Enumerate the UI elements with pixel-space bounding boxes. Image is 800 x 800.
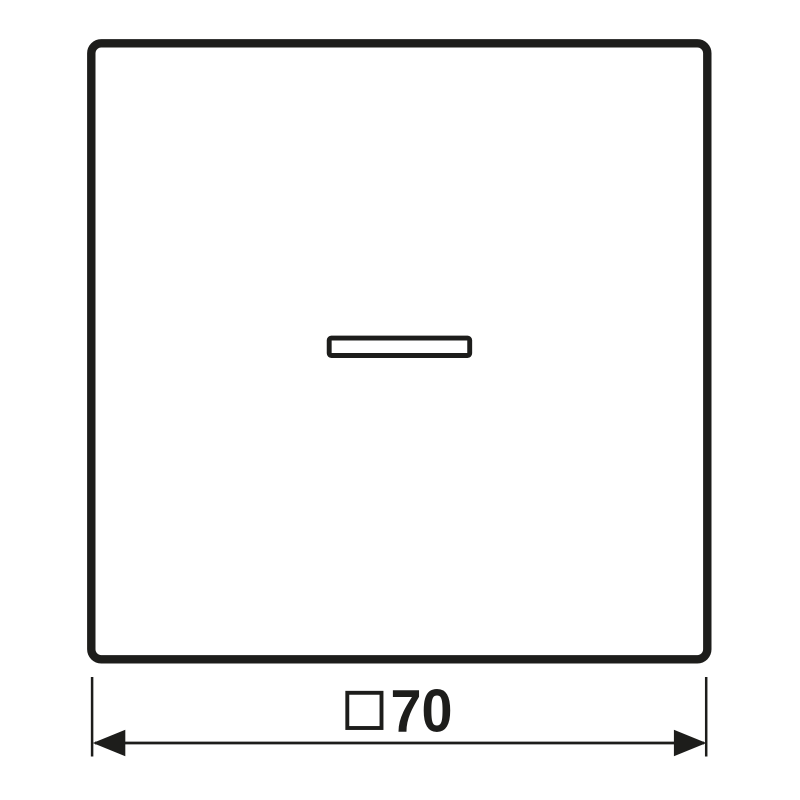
svg-text:70: 70 xyxy=(391,678,453,745)
